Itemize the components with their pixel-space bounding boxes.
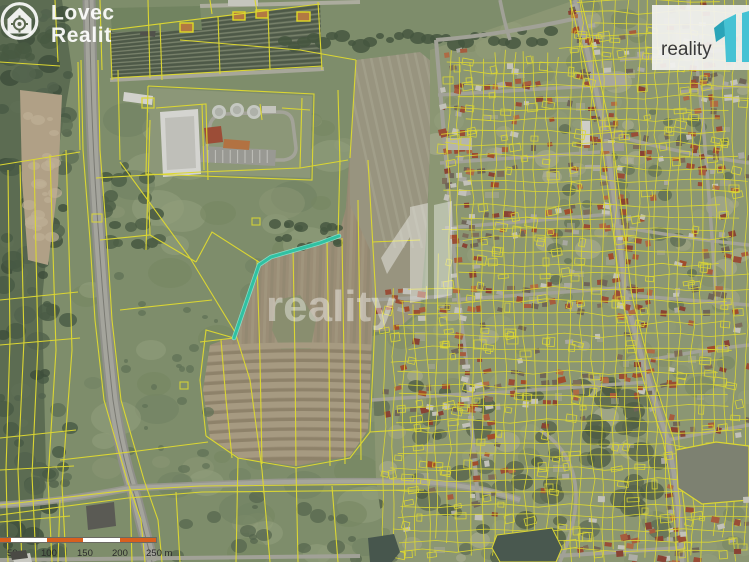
svg-text:150: 150: [77, 548, 93, 559]
svg-text:100: 100: [41, 548, 57, 559]
svg-text:Lovec: Lovec: [51, 2, 115, 25]
svg-text:200: 200: [112, 548, 128, 559]
svg-text:Realit: Realit: [51, 24, 112, 47]
svg-text:reality: reality: [661, 39, 712, 60]
svg-text:250 m: 250 m: [146, 548, 172, 559]
svg-text:reality: reality: [266, 282, 396, 331]
